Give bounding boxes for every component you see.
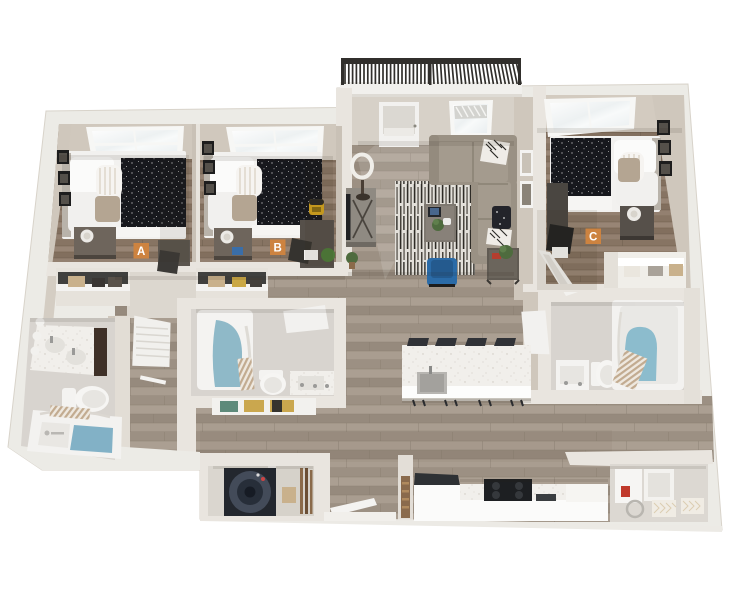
svg-text:C: C (589, 232, 597, 244)
svg-text:A: A (137, 246, 145, 258)
svg-text:B: B (274, 243, 282, 255)
